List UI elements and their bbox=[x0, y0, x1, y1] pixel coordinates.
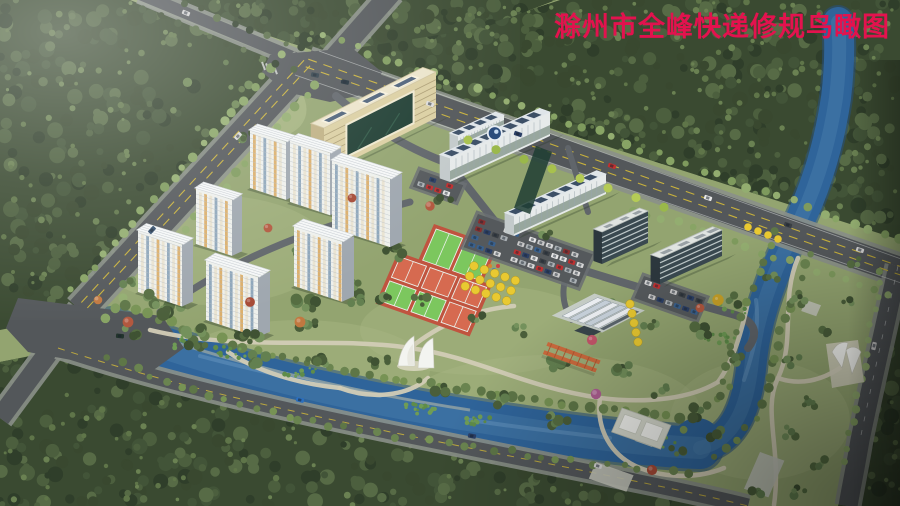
title-watermark: 滁州市全峰快递修规鸟瞰图 bbox=[554, 5, 890, 44]
aerial-rendering bbox=[0, 0, 900, 506]
aerial-rendering-stage: 滁州市全峰快递修规鸟瞰图 bbox=[0, 0, 900, 506]
